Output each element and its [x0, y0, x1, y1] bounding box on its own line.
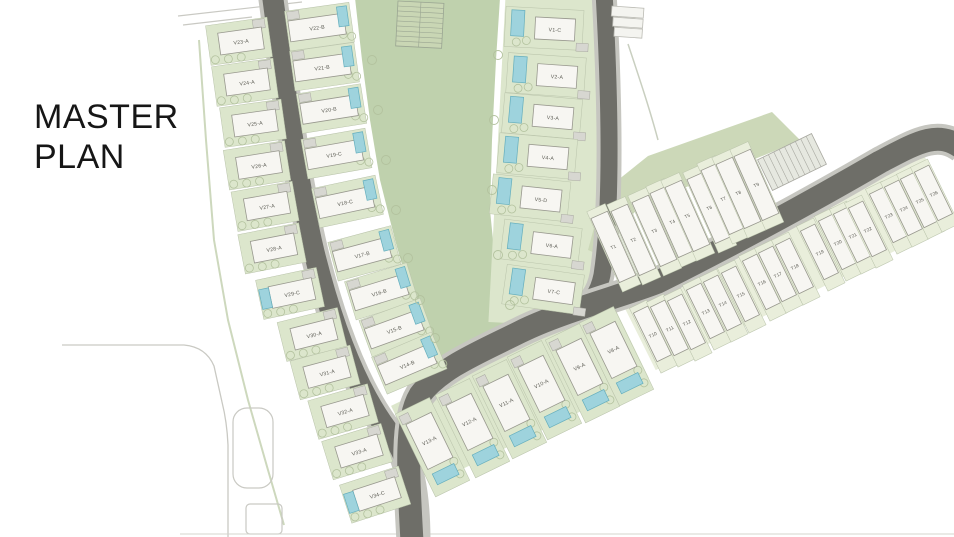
driveway — [561, 214, 574, 223]
pool — [496, 177, 512, 204]
pool — [503, 136, 518, 163]
page-title-line2: PLAN — [34, 137, 179, 177]
future-road-outline — [62, 345, 228, 537]
villa-lot: V1-C — [504, 6, 590, 51]
driveway — [303, 138, 316, 148]
lot-label: V3-A — [546, 115, 559, 122]
driveway — [576, 43, 588, 52]
page-title-line1: MASTER — [34, 97, 179, 137]
villa-lot: V28-A — [238, 223, 306, 274]
villa-lot: V26-A — [223, 141, 290, 190]
villa-lot: V27-A — [231, 181, 299, 231]
driveway — [287, 10, 300, 20]
master-plan-slide: V23-AV24-AV25-AV26-AV27-AV28-AV29-CV30-A… — [0, 0, 954, 537]
villa-lot: V3-A — [501, 93, 588, 141]
future-structure-outline — [246, 504, 282, 534]
villa-lot: V18-C — [311, 175, 385, 228]
villa-lot: V4-A — [496, 133, 583, 181]
villa-lot: V24-A — [212, 58, 279, 106]
pool — [508, 96, 523, 123]
pool — [511, 10, 525, 37]
lot-label: V2-A — [551, 74, 564, 81]
villa-lot: V29-C — [256, 267, 325, 319]
lot-label: V4-A — [541, 155, 554, 162]
driveway — [577, 91, 590, 100]
parking-stub-north-east — [610, 6, 644, 38]
driveway — [573, 307, 586, 317]
villa-lot: V20-B — [296, 83, 368, 133]
pool — [507, 223, 523, 250]
villa-lot: V25-A — [220, 99, 287, 147]
lot-label: V1-C — [548, 27, 561, 34]
villa-lot: V19-C — [301, 128, 374, 179]
parking-lot-north — [396, 1, 444, 48]
pool — [512, 56, 527, 83]
driveway — [568, 172, 581, 181]
driveway — [571, 261, 584, 270]
villa-lot: V23-A — [206, 17, 273, 65]
park-trail-line — [628, 44, 658, 140]
driveway — [298, 93, 311, 103]
driveway — [292, 50, 305, 60]
site-plan-drawing: V23-AV24-AV25-AV26-AV27-AV28-AV29-CV30-A… — [0, 0, 954, 537]
page-title: MASTER PLAN — [34, 97, 179, 177]
villa-lot: V2-A — [506, 53, 593, 100]
